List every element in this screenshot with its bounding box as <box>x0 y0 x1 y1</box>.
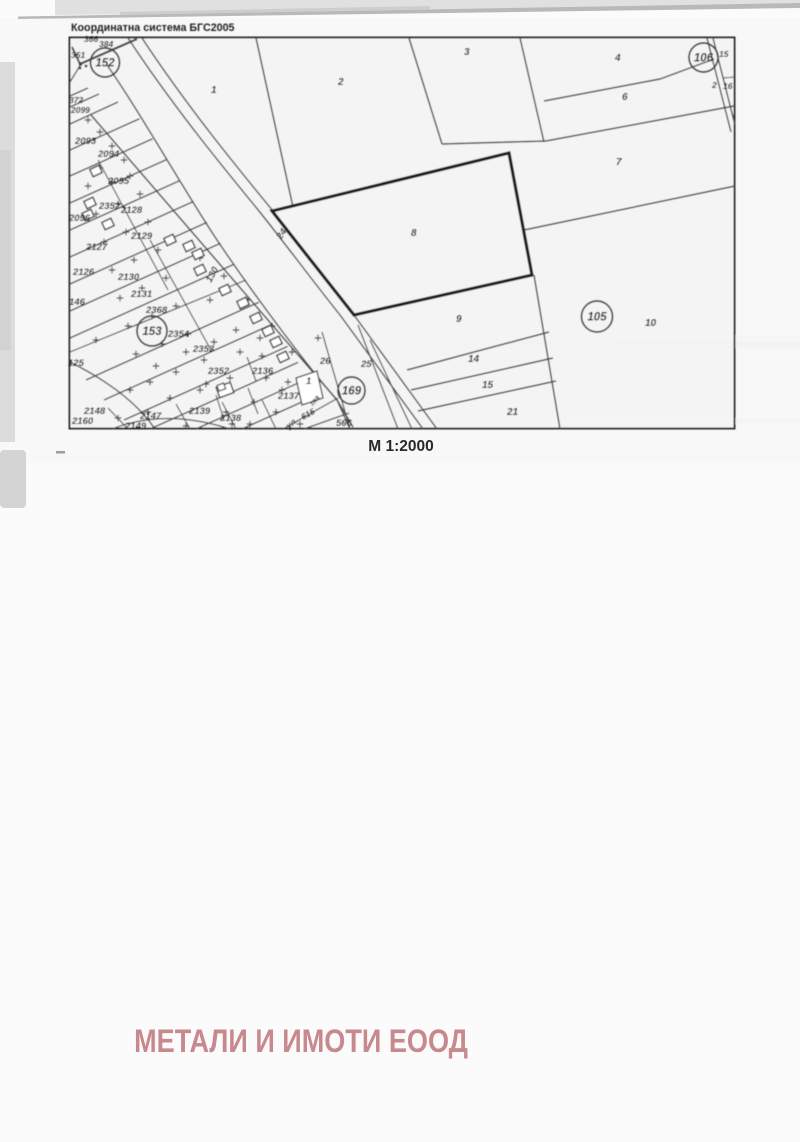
svg-text:2094: 2094 <box>97 149 120 160</box>
svg-text:146: 146 <box>69 297 86 308</box>
svg-text:4: 4 <box>614 53 621 64</box>
svg-text:2138: 2138 <box>219 413 242 424</box>
svg-text:2129: 2129 <box>130 231 153 242</box>
svg-text:2095: 2095 <box>107 176 130 187</box>
svg-text:372: 372 <box>69 95 83 105</box>
svg-text:14: 14 <box>468 354 480 365</box>
svg-text:2368: 2368 <box>145 305 168 316</box>
svg-text:105: 105 <box>587 312 607 324</box>
svg-text:2131: 2131 <box>130 289 152 300</box>
svg-text:2139: 2139 <box>188 406 211 417</box>
svg-text:2352: 2352 <box>207 366 230 377</box>
svg-text:2128: 2128 <box>120 205 143 216</box>
svg-text:МЕТАЛИ И ИМОТИ ЕООД: МЕТАЛИ И ИМОТИ ЕООД <box>134 1024 468 1060</box>
svg-text:2160: 2160 <box>71 416 94 427</box>
svg-text:2353: 2353 <box>192 344 215 355</box>
svg-text:10: 10 <box>645 318 657 329</box>
svg-text:566: 566 <box>336 418 353 429</box>
svg-text:366: 366 <box>84 34 98 44</box>
svg-text:2126: 2126 <box>72 267 95 278</box>
svg-text:Координатна система БГС2005: Координатна система БГС2005 <box>71 22 235 34</box>
svg-text:106: 106 <box>694 53 714 65</box>
svg-text:25: 25 <box>360 359 372 370</box>
svg-text:2096: 2096 <box>68 213 91 224</box>
svg-text:152: 152 <box>95 58 115 70</box>
svg-text:26: 26 <box>319 356 331 367</box>
svg-text:2130: 2130 <box>117 272 140 283</box>
svg-text:2127: 2127 <box>85 242 108 253</box>
svg-text:2354: 2354 <box>167 329 190 340</box>
svg-text:7: 7 <box>616 157 622 168</box>
svg-text:8: 8 <box>411 228 417 239</box>
svg-text:21: 21 <box>506 407 519 418</box>
svg-text:125: 125 <box>68 358 85 369</box>
svg-text:1: 1 <box>306 376 311 387</box>
svg-text:6: 6 <box>622 92 628 103</box>
svg-text:384: 384 <box>99 39 113 49</box>
svg-text:15: 15 <box>482 380 494 391</box>
svg-text:2352: 2352 <box>98 201 121 212</box>
svg-text:2: 2 <box>711 80 717 90</box>
svg-text:9: 9 <box>456 314 462 325</box>
svg-text:2137: 2137 <box>277 391 300 402</box>
svg-text:153: 153 <box>142 326 162 338</box>
svg-text:2136: 2136 <box>251 366 274 377</box>
svg-text:16: 16 <box>723 81 733 91</box>
svg-text:2149: 2149 <box>124 421 147 432</box>
svg-text:351: 351 <box>71 50 85 60</box>
svg-text:М 1:2000: М 1:2000 <box>368 438 433 455</box>
svg-text:169: 169 <box>342 386 362 398</box>
svg-text:2099: 2099 <box>70 105 90 115</box>
svg-text:3: 3 <box>464 47 470 58</box>
svg-text:15: 15 <box>719 49 729 59</box>
svg-text:1: 1 <box>211 85 217 96</box>
svg-text:2093: 2093 <box>74 136 97 147</box>
svg-text:2: 2 <box>337 77 344 88</box>
